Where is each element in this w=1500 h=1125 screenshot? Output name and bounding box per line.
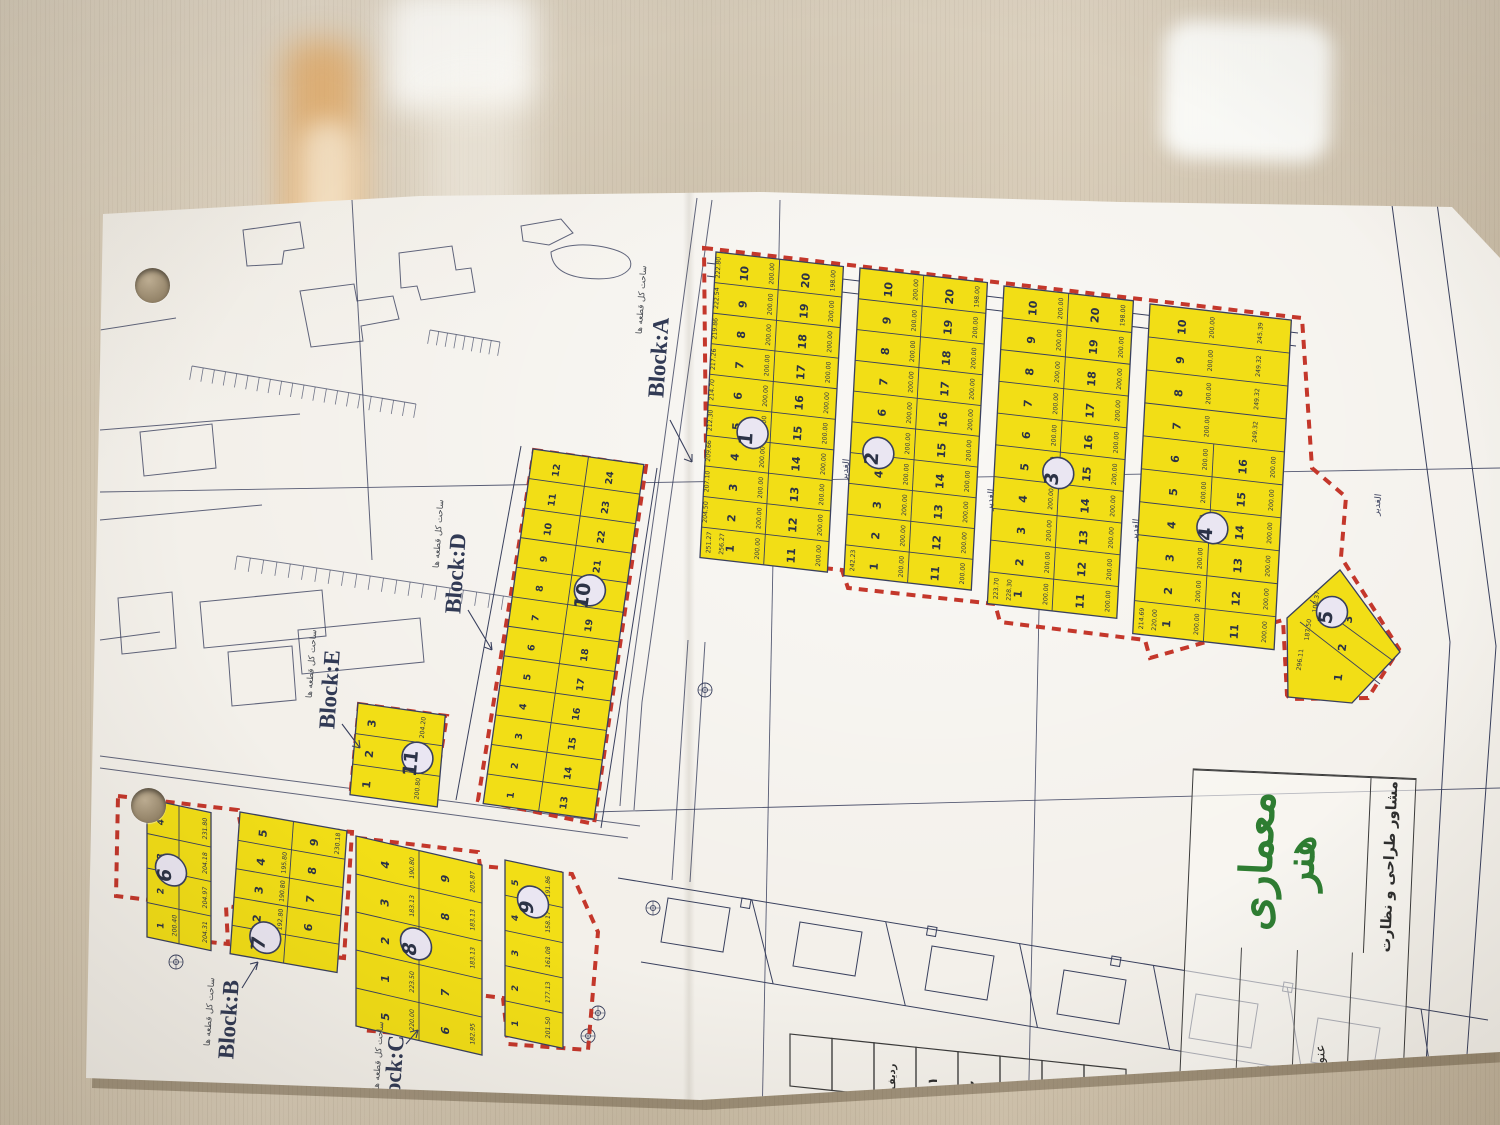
parcel-number: 12 (786, 517, 800, 534)
dimension-label: 219.86 (711, 318, 719, 340)
parking-line (288, 564, 290, 578)
parking-line (324, 389, 326, 403)
parcel-number: 18 (940, 350, 954, 367)
parking-line (190, 366, 192, 380)
area-label: 200.00 (765, 324, 773, 346)
dimension-label: 245.39 (1257, 322, 1265, 344)
area-label: 200.00 (754, 538, 762, 560)
dimension-label: 251.27 (705, 531, 713, 553)
parcel-number: 15 (935, 442, 949, 459)
desk-scene: 1020200.00198.00222.80919200.00200.00222… (0, 0, 1500, 1125)
parking-line (368, 576, 370, 590)
area-label: 231.80 (202, 817, 209, 840)
area-label: 200.00 (1268, 489, 1276, 511)
parcel-number: 1 (1332, 673, 1346, 682)
area-label: 183.13 (409, 894, 416, 917)
parcel-block-3: 1020200.00198.00919200.00200.00818200.00… (987, 286, 1133, 618)
dimension-label: 209.66 (705, 440, 713, 462)
building-outline (399, 246, 475, 300)
parcel-number: 15 (566, 736, 579, 751)
parcel-number: 11 (546, 493, 559, 508)
area-label: 200.00 (1104, 590, 1112, 612)
parcel-number: 2 (1336, 643, 1350, 652)
area-label: 200.00 (1263, 588, 1271, 610)
parking-line (480, 339, 482, 353)
parcel-number: 16 (937, 411, 951, 428)
parking-line (408, 582, 410, 596)
area-label: 200.00 (1264, 555, 1272, 577)
parking-line (421, 584, 423, 598)
parcel-number: 10 (1175, 319, 1189, 336)
building-outline (352, 200, 372, 560)
area-label: 200.00 (899, 525, 907, 547)
area-label: 200.00 (1209, 316, 1217, 338)
parking-line (369, 396, 371, 410)
parcel-block-11: 3204.202205.851200.8011 (350, 703, 445, 807)
area-label: 200.00 (767, 293, 775, 315)
firm-logo: معماری هنر (1186, 770, 1371, 953)
area-label: 198.00 (973, 286, 981, 308)
parking-line (335, 391, 337, 405)
row-table-value: ۱ (926, 1076, 941, 1086)
area-label: 200.00 (967, 409, 975, 431)
area-label: 200.00 (1203, 415, 1211, 437)
area-label: 200.00 (1205, 382, 1213, 404)
leader-line (468, 610, 492, 650)
area-label: 223.50 (409, 970, 416, 993)
dimension-label: 214.70 (708, 379, 716, 401)
parcel-number: 2 (725, 514, 738, 523)
area-label: 200.00 (1113, 431, 1121, 453)
road-line (1437, 203, 1496, 1125)
leader-line (242, 962, 258, 988)
area-label: 200.00 (1111, 463, 1119, 485)
area-label: 200.00 (1207, 349, 1215, 371)
area-label: 200.00 (755, 507, 763, 529)
parcel-number: 12 (1075, 561, 1089, 578)
building-outline (118, 592, 176, 654)
area-label: 200.00 (904, 432, 912, 454)
parcel-number: 10 (882, 281, 896, 298)
parking-line (488, 594, 490, 608)
parcel-number: 13 (1231, 557, 1245, 574)
parcel-number: 21 (591, 559, 604, 574)
area-label: 200.00 (907, 371, 915, 393)
parcel-number: 9 (1025, 336, 1038, 345)
area-label: 195.80 (281, 851, 289, 874)
dimension-label: 249.32 (1255, 355, 1263, 377)
area-label: 200.00 (903, 463, 911, 485)
parcel-number: 11 (928, 565, 942, 582)
parking-line (380, 398, 382, 412)
parcel-number: 16 (1236, 458, 1250, 475)
parcel-number: 7 (1170, 422, 1183, 431)
parcel-number: 22 (595, 530, 608, 545)
parcel-number: 14 (789, 455, 803, 472)
parcel-number: 12 (551, 463, 564, 478)
parking-line (346, 393, 348, 407)
parcel-number: 15 (1080, 466, 1094, 483)
parcel-block-2: 1020200.00198.00919200.00200.00818200.00… (844, 268, 988, 590)
parking-line (475, 592, 477, 606)
area-label: 200.00 (1108, 527, 1116, 549)
parking-line (212, 370, 214, 384)
building-outline (100, 414, 300, 430)
parcel-number: 8 (879, 347, 892, 356)
area-label: 200.00 (815, 545, 823, 567)
parking-line (471, 338, 473, 352)
area-label: 200.00 (1193, 613, 1201, 635)
area-label: 200.00 (972, 316, 980, 338)
building-outline (100, 505, 262, 520)
area-label: 200.00 (1106, 558, 1114, 580)
parcel-number: 7 (877, 377, 890, 386)
area-label: 192.80 (277, 908, 285, 931)
title-block-logo-column: معماری هنر مشاور طراحی و نظارت (1186, 769, 1415, 955)
lot-divider (752, 900, 773, 984)
area-label: 200.00 (1118, 336, 1126, 358)
dimension-label: 212.30 (707, 409, 715, 431)
parcel-number: 12 (930, 534, 944, 551)
parking-line (454, 335, 456, 349)
area-label: 200.00 (965, 439, 973, 461)
parcel-number: 13 (932, 504, 946, 521)
area-label: 161.08 (545, 946, 552, 969)
parking-line (436, 332, 438, 346)
area-label: 200.00 (1042, 583, 1050, 605)
parking-line (355, 574, 357, 588)
area-label: 200.00 (1197, 547, 1205, 569)
parking-line (223, 372, 225, 386)
parking-line (234, 374, 236, 388)
parking-line (414, 404, 416, 418)
parking-line (358, 395, 360, 409)
area-label: 200.00 (1195, 580, 1203, 602)
parcel-number: 2 (869, 531, 882, 540)
area-label: 200.00 (1202, 448, 1210, 470)
area-label: 200.00 (828, 300, 836, 322)
area-label: 200.40 (171, 914, 178, 937)
building-outline (521, 219, 573, 245)
parking-line (262, 560, 264, 574)
building-outline (793, 922, 862, 976)
area-label: 200.00 (901, 494, 909, 516)
area-label: 200.00 (970, 347, 978, 369)
utility-box (927, 926, 938, 937)
parcel-number: 5 (256, 829, 269, 839)
parcel-number: 8 (735, 330, 748, 339)
parcel-number: 10 (738, 265, 752, 282)
dimension-label: 217.26 (710, 348, 718, 370)
parcel-number: 17 (1083, 402, 1097, 419)
area-label: 201.50 (545, 1016, 552, 1039)
dimension-label: 228.30 (1006, 579, 1014, 601)
parcel-block-1: 1020200.00198.00222.80919200.00200.00222… (700, 252, 843, 572)
utility-box (1111, 956, 1122, 967)
parcel-block-6: 4231.803204.182204.971200.40204.316 (147, 799, 211, 951)
row-table-title: ردیف (887, 1063, 898, 1091)
parcel-number: 13 (1077, 529, 1091, 546)
area-label: 200.00 (898, 555, 906, 577)
parcel-block-10: 1224112310229218207196185174163152141131… (483, 449, 644, 819)
parcel-number: 11 (1228, 623, 1242, 640)
lot-divider (1153, 965, 1169, 1049)
parcel-number: 19 (797, 303, 811, 320)
parcel-number: 17 (794, 364, 808, 381)
block-letter-label: Block:A (643, 316, 674, 398)
area-label: 200.00 (825, 361, 833, 383)
area-label: 182.95 (470, 1022, 477, 1045)
parcel-number: 11 (1073, 593, 1087, 610)
dimension-label: 204.50 (702, 501, 710, 523)
area-label: 200.00 (818, 483, 826, 505)
parcel-number: 5 (1167, 487, 1180, 496)
parcel-number: 1 (868, 562, 881, 571)
building-outline (100, 632, 160, 640)
parcel-number: 8 (1023, 367, 1036, 376)
area-label: 200.00 (821, 422, 829, 444)
parcel-number: 24 (604, 470, 617, 485)
parcel-number: 14 (933, 473, 947, 490)
area-label: 190.80 (409, 856, 416, 879)
parcel-number: 8 (1172, 389, 1185, 398)
parking-line (302, 566, 304, 580)
parking-line (395, 580, 397, 594)
parcel-number: 12 (1229, 590, 1243, 607)
parcel-number: 16 (1082, 434, 1096, 451)
street-name-label: الغدیر (1372, 493, 1385, 517)
parcel-number: 19 (583, 618, 596, 633)
area-label: 200.00 (906, 402, 914, 424)
area-label: 200.00 (1044, 551, 1052, 573)
parcel-number: 5 (1018, 463, 1031, 472)
parking-line (498, 342, 500, 356)
area-label: 183.13 (470, 908, 477, 931)
building-outline (1057, 970, 1126, 1024)
parcel-number: 10 (1026, 300, 1040, 317)
hole-punch (135, 268, 170, 303)
area-label: 183.13 (470, 946, 477, 969)
parking-line (391, 400, 393, 414)
hole-punch (131, 788, 166, 823)
parking-line (279, 381, 281, 395)
parking-line (402, 402, 404, 416)
area-label: 200.00 (1054, 361, 1062, 383)
area-label: 200.00 (1270, 456, 1278, 478)
parcel-block-8: 49190.80205.8738183.13183.132183.13183.1… (356, 836, 482, 1055)
building-outline (661, 898, 730, 952)
area-label: 204.97 (202, 886, 209, 909)
area-label: 204.18 (202, 852, 209, 875)
area-label: 200.00 (959, 562, 967, 584)
parcel-number: 20 (943, 288, 957, 305)
building-outline (228, 646, 296, 706)
block-letter-label: Block:D (440, 532, 471, 614)
area-label: 200.00 (1114, 400, 1122, 422)
dimension-label: 249.32 (1253, 388, 1261, 410)
row-table-cell (832, 1038, 874, 1094)
building-outline (100, 318, 176, 330)
parcel-number: 10 (542, 522, 555, 537)
parcel-number: 9 (1174, 356, 1187, 365)
area-label: 200.00 (826, 331, 834, 353)
parcel-number: 7 (733, 361, 746, 370)
area-label: 177.13 (545, 981, 552, 1004)
block-circle-number: 2 (861, 451, 884, 467)
parking-line (248, 558, 250, 572)
parcel-number: 13 (788, 486, 802, 503)
lot-divider (1020, 944, 1038, 1028)
block-circle-number: 5 (1314, 609, 1337, 625)
parking-line (235, 556, 237, 570)
dimension-label: 223.70 (993, 577, 1001, 599)
parcel-block-4: 10200.00245.399200.00249.328200.00249.32… (1133, 304, 1292, 650)
area-annotation: ساحت کل قطعه ها (635, 265, 650, 334)
area-label: 200.00 (909, 340, 917, 362)
area-label: 220.00 (409, 1008, 416, 1031)
block-circle-number: 4 (1195, 526, 1218, 542)
parcel-number: 17 (575, 677, 588, 692)
lot-divider (886, 922, 906, 1006)
building-outline (300, 284, 399, 347)
area-label: 200.00 (759, 446, 767, 468)
parking-line (489, 341, 491, 355)
parcel-number: 16 (571, 707, 584, 722)
parking-line (313, 387, 315, 401)
area-label: 198.00 (829, 269, 837, 291)
parcel-number: 15 (791, 425, 805, 442)
firm-subtitle: مشاور طراحی و نظارت (1364, 778, 1416, 955)
area-label: 200.00 (823, 392, 831, 414)
parcel-number: 1 (1012, 590, 1025, 599)
parking-line (302, 385, 304, 399)
block-circle-number: 10 (570, 581, 595, 610)
utility-box (741, 898, 752, 909)
parking-line (246, 376, 248, 390)
parcel-number: 7 (1022, 399, 1035, 408)
block-circle-number: 1 (735, 431, 758, 447)
block-circle-number: 3 (1041, 471, 1064, 487)
dimension-label: 220.00 (1151, 609, 1159, 631)
parcel-number: 14 (1078, 497, 1092, 514)
area-label: 200.00 (1046, 520, 1054, 542)
parcel-number: 2 (1162, 586, 1175, 595)
parking-line (290, 383, 292, 397)
dimension-label: 207.10 (703, 470, 711, 492)
area-label: 198.00 (1119, 304, 1127, 326)
area-label: 200.00 (1057, 297, 1065, 319)
parcel-number: 18 (579, 647, 592, 662)
building-outline (243, 222, 304, 266)
area-label: 200.00 (757, 476, 765, 498)
building-outline (551, 245, 631, 279)
area-label: 200.00 (962, 501, 970, 523)
area-label: 200.00 (820, 453, 828, 475)
row-table-cell (790, 1034, 832, 1090)
parcel-number: 18 (1085, 371, 1099, 388)
block-letter-label: Block:E (314, 649, 344, 730)
area-label: 205.87 (470, 870, 477, 893)
parcel-number: 19 (941, 319, 955, 336)
parcel-block-7: 59230.1848195.8037190.8026192.8017 (230, 812, 347, 973)
area-label: 200.00 (768, 263, 776, 285)
parcel-block-9: 5191.864158.173161.082177.131201.509 (505, 860, 563, 1048)
parking-line (445, 333, 447, 347)
paper-crease (683, 192, 695, 1125)
area-label: 200.00 (1200, 481, 1208, 503)
parcel-number: 14 (1233, 524, 1247, 541)
area-label: 200.00 (1261, 621, 1269, 643)
parcel-number: 2 (1013, 558, 1026, 567)
parcel-number: 13 (558, 796, 571, 811)
parcel-number: 3 (1015, 526, 1028, 535)
logo-word-1: معماری (1232, 790, 1283, 931)
parcel-number: 9 (736, 300, 749, 309)
area-label: 204.31 (202, 921, 209, 944)
area-label: 200.00 (1055, 329, 1063, 351)
block-circle-number: 11 (399, 749, 423, 778)
dimension-label: 222.80 (715, 256, 723, 278)
area-label: 200.00 (911, 309, 919, 331)
parking-line (341, 572, 343, 586)
dimension-label: 222.54 (713, 287, 721, 309)
parking-line (328, 570, 330, 584)
area-label: 200.00 (1266, 522, 1274, 544)
parcel-number: 19 (1087, 339, 1101, 356)
building-outline (925, 946, 994, 1000)
parking-line (257, 377, 259, 391)
dimension-label: 242.23 (849, 549, 857, 571)
parcel-number: 3 (1163, 553, 1176, 562)
area-label: 200.00 (817, 514, 825, 536)
area-label: 200.00 (961, 532, 969, 554)
parking-line (201, 368, 203, 382)
parcel-number: 9 (880, 316, 893, 325)
area-label: 200.00 (1116, 368, 1124, 390)
area-label: 200.00 (912, 279, 920, 301)
dimension-label: 256.27 (718, 533, 726, 555)
parking-line (435, 586, 437, 600)
parking-line (463, 336, 465, 350)
logo-word-2: هنر (1279, 834, 1322, 891)
parking-line (268, 379, 270, 393)
area-label: 200.00 (969, 378, 977, 400)
parcel-number: 3 (727, 483, 740, 492)
parcel-number: 20 (799, 272, 813, 289)
block-letter-label: Block:B (213, 979, 243, 1060)
parcel-number: 20 (1088, 307, 1102, 324)
area-label: 200.00 (1052, 393, 1060, 415)
parcel-number: 16 (793, 394, 807, 411)
building-outline (200, 590, 326, 648)
parking-line (381, 578, 383, 592)
area-label: 200.00 (964, 470, 972, 492)
parcel-number: 11 (785, 547, 799, 564)
parcel-number: 3 (871, 501, 884, 510)
area-label: 200.00 (1047, 488, 1055, 510)
parcel-number: 1 (1160, 619, 1173, 628)
parcel-number: 14 (562, 766, 575, 781)
area-label: 191.86 (545, 875, 552, 898)
building-outline (140, 424, 216, 476)
parking-line (275, 562, 277, 576)
parking-line (315, 568, 317, 582)
parcel-number: 18 (796, 333, 810, 350)
dimension-label: 214.69 (1138, 607, 1146, 629)
parcel-number: 15 (1235, 491, 1249, 508)
parcel-number: 17 (938, 381, 952, 398)
area-label: 200.00 (1109, 495, 1117, 517)
